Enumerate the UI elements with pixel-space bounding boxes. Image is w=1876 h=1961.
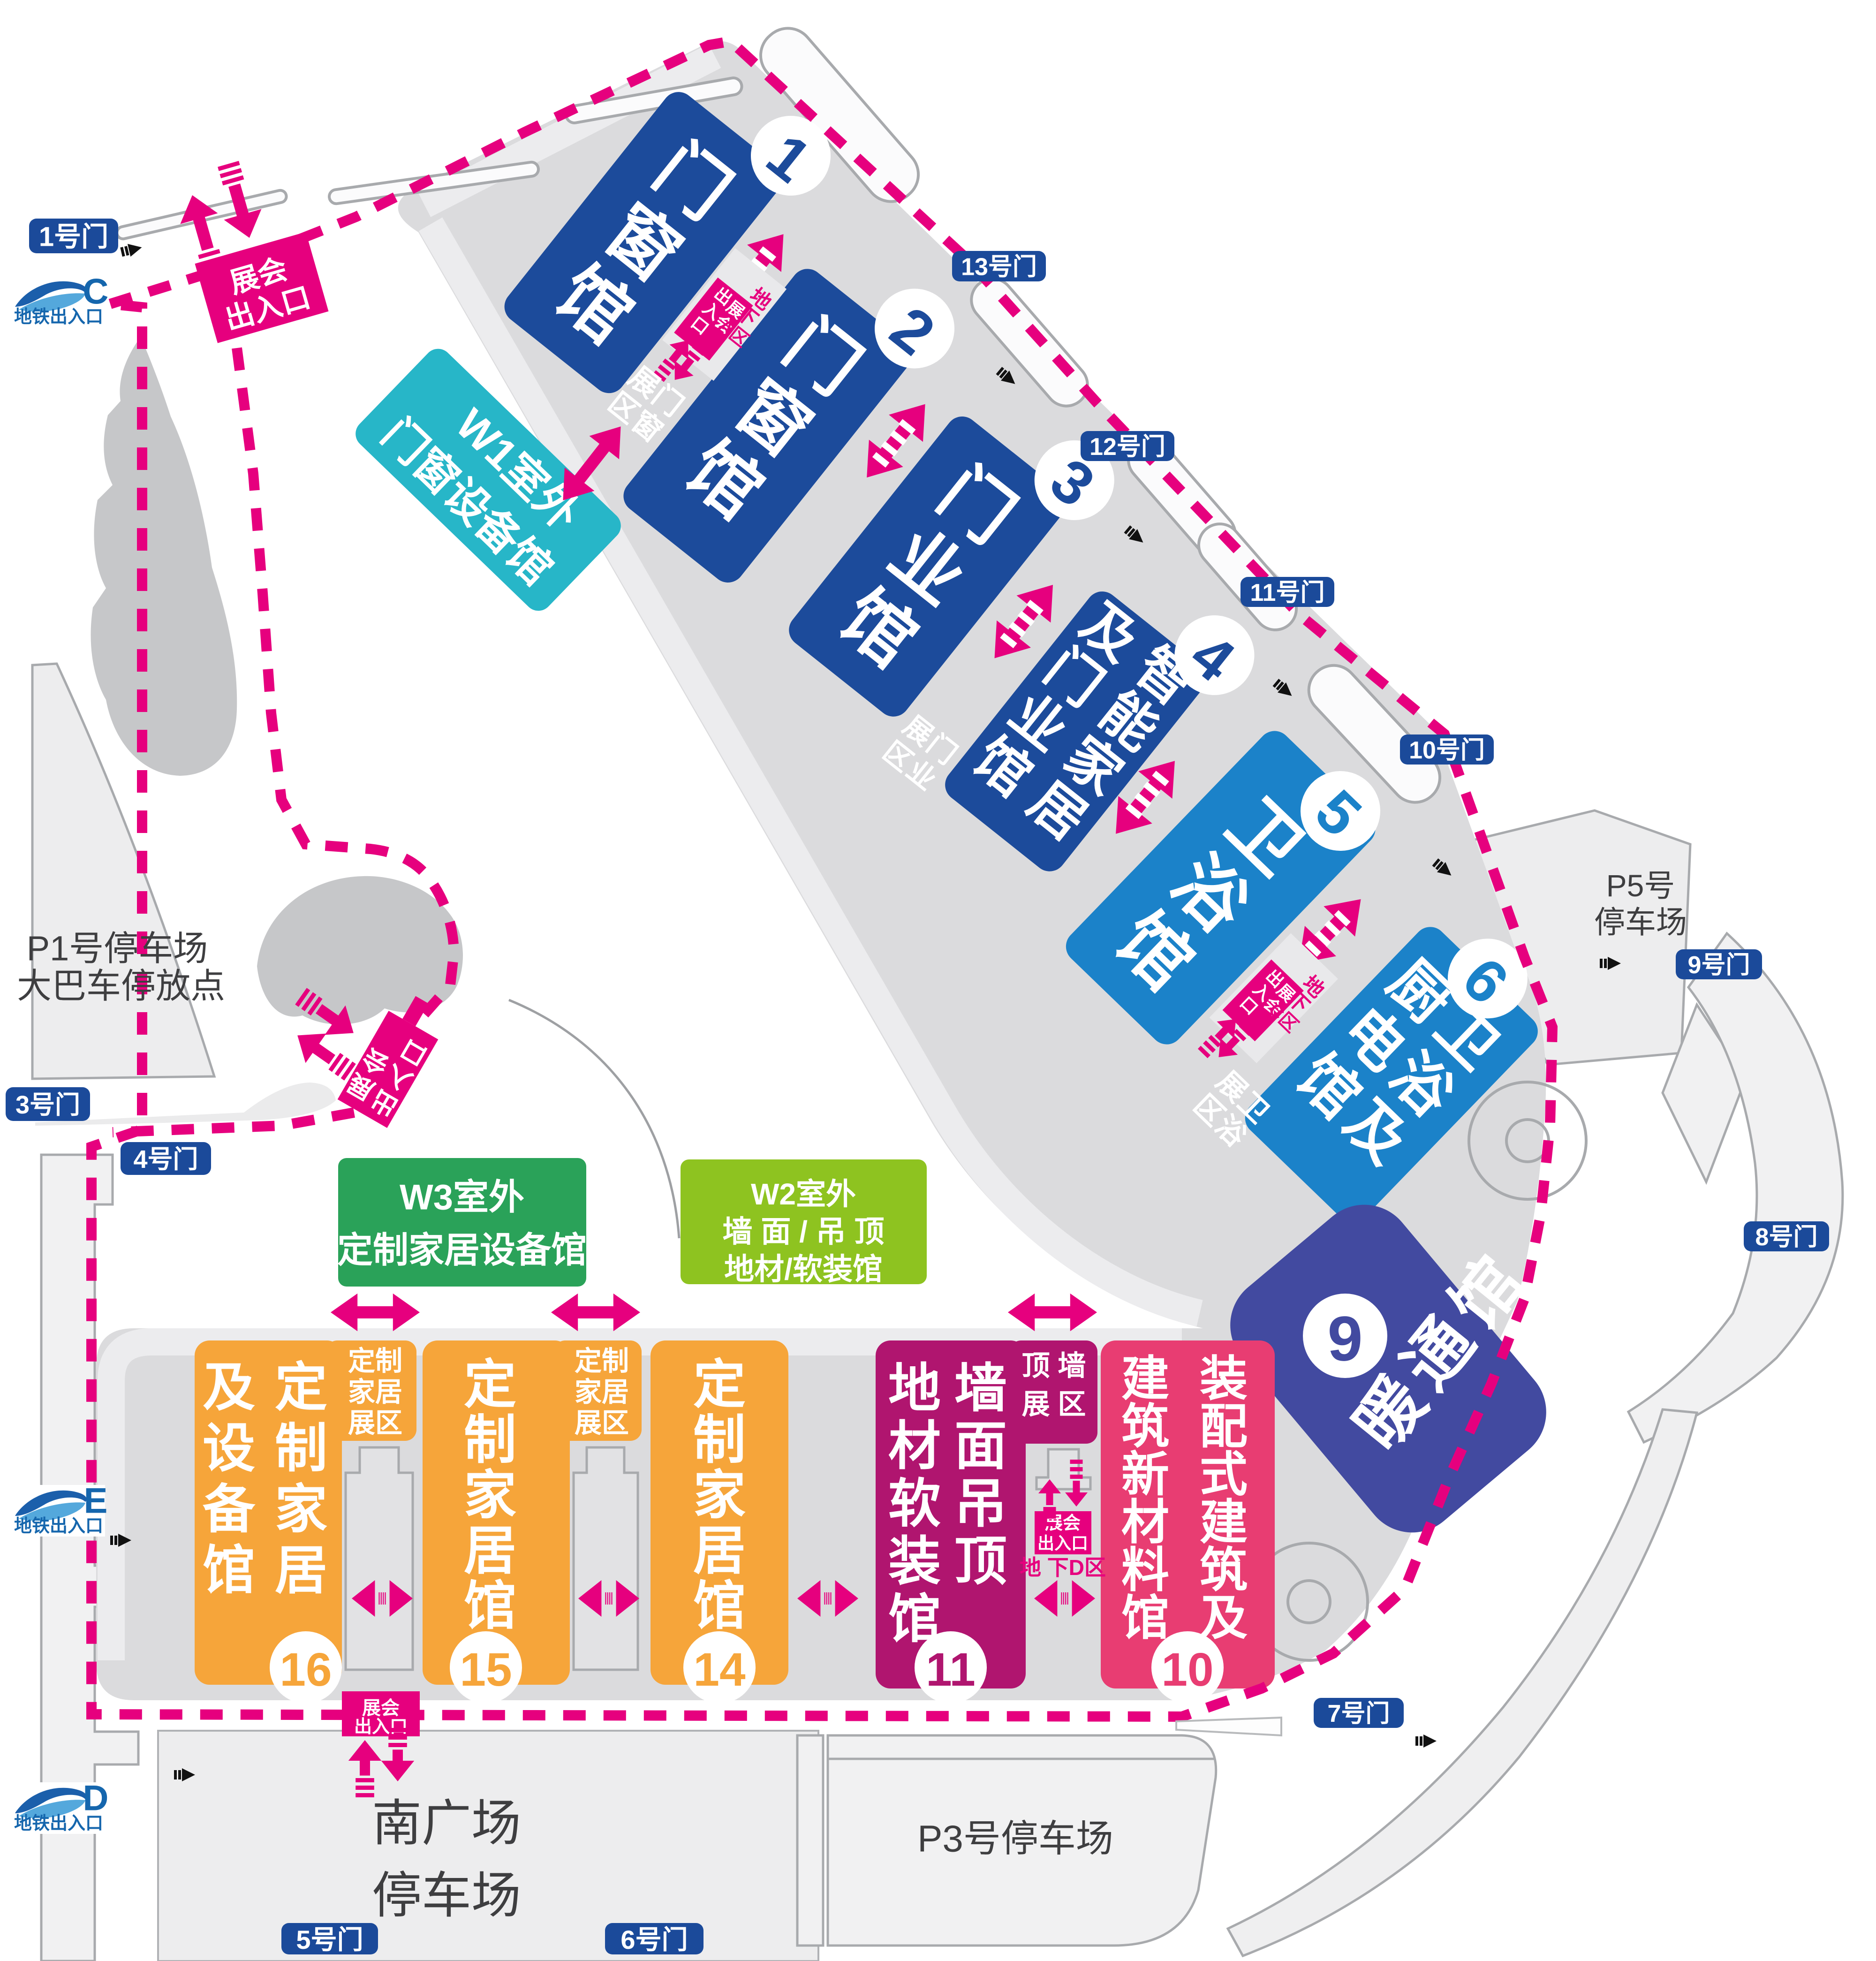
svg-text:4号门: 4号门: [133, 1145, 198, 1174]
svg-text:墙 面 / 吊 顶: 墙 面 / 吊 顶: [723, 1215, 885, 1249]
svg-text:P5号: P5号: [1606, 868, 1675, 903]
svg-text:筑: 筑: [1121, 1400, 1169, 1454]
svg-text:吊: 吊: [954, 1475, 1007, 1533]
svg-text:5号门: 5号门: [296, 1925, 363, 1954]
svg-text:12号门: 12号门: [1089, 433, 1165, 461]
svg-text:出入口: 出入口: [354, 1717, 408, 1737]
svg-text:筑: 筑: [1200, 1544, 1248, 1597]
svg-text:馆: 馆: [203, 1541, 255, 1600]
svg-text:材: 材: [1121, 1496, 1169, 1549]
svg-text:9号门: 9号门: [1688, 952, 1750, 979]
svg-text:停车场: 停车场: [372, 1868, 521, 1923]
svg-text:面: 面: [954, 1417, 1007, 1476]
svg-text:6号门: 6号门: [620, 1925, 688, 1954]
svg-text:地: 地: [888, 1359, 941, 1418]
svg-text:定: 定: [275, 1358, 327, 1417]
svg-text:P1号停车场: P1号停车场: [27, 929, 208, 968]
svg-text:软: 软: [888, 1475, 941, 1533]
svg-text:地铁出入口: 地铁出入口: [14, 1814, 103, 1833]
svg-text:地铁出入口: 地铁出入口: [14, 307, 103, 327]
svg-text:设: 设: [203, 1419, 255, 1478]
svg-text:建: 建: [1121, 1352, 1169, 1406]
svg-text:馆: 馆: [693, 1577, 746, 1635]
svg-text:材: 材: [888, 1417, 941, 1476]
svg-text:E: E: [84, 1481, 108, 1521]
svg-text:南广场: 南广场: [372, 1796, 521, 1851]
svg-text:装: 装: [1200, 1352, 1248, 1406]
svg-text:定: 定: [464, 1355, 516, 1414]
svg-text:制: 制: [275, 1419, 327, 1478]
svg-text:装: 装: [888, 1532, 941, 1591]
svg-text:展区: 展区: [348, 1408, 402, 1439]
svg-text:新: 新: [1121, 1448, 1169, 1501]
svg-text:W2室外: W2室外: [751, 1177, 856, 1211]
svg-text:C: C: [83, 272, 109, 312]
svg-text:展 区: 展 区: [1022, 1389, 1086, 1420]
svg-text:配: 配: [1200, 1400, 1248, 1454]
svg-text:定制家居设备馆: 定制家居设备馆: [337, 1231, 587, 1271]
svg-text:停车场: 停车场: [1594, 905, 1687, 939]
svg-text:15: 15: [460, 1643, 512, 1696]
svg-text:8号门: 8号门: [1755, 1224, 1818, 1251]
svg-text:及: 及: [1200, 1591, 1248, 1645]
svg-text:7号门: 7号门: [1328, 1700, 1390, 1727]
svg-text:10号门: 10号门: [1409, 737, 1485, 764]
svg-text:16: 16: [280, 1643, 332, 1696]
svg-text:11号门: 11号门: [1250, 579, 1325, 606]
svg-text:9: 9: [1327, 1303, 1362, 1374]
svg-text:馆: 馆: [464, 1577, 516, 1635]
svg-text:家居: 家居: [348, 1377, 402, 1408]
svg-text:展区: 展区: [575, 1408, 629, 1439]
svg-text:备: 备: [203, 1480, 256, 1539]
svg-text:地铁出入口: 地铁出入口: [14, 1516, 103, 1536]
svg-text:地 下D区: 地 下D区: [1020, 1555, 1106, 1580]
svg-text:地材/软装馆: 地材/软装馆: [724, 1252, 883, 1286]
svg-text:定制: 定制: [348, 1346, 402, 1377]
svg-text:家: 家: [693, 1466, 746, 1525]
svg-text:家: 家: [464, 1466, 516, 1525]
svg-text:D: D: [83, 1779, 109, 1818]
svg-text:家居: 家居: [575, 1377, 629, 1408]
svg-text:13号门: 13号门: [961, 254, 1037, 281]
svg-text:建: 建: [1200, 1496, 1248, 1549]
svg-text:W3室外: W3室外: [400, 1178, 524, 1218]
svg-text:P3号停车场: P3号停车场: [917, 1818, 1113, 1860]
svg-text:家: 家: [275, 1480, 327, 1539]
svg-text:制: 制: [693, 1411, 746, 1469]
svg-text:出入口: 出入口: [1037, 1534, 1088, 1553]
svg-text:及: 及: [203, 1358, 255, 1417]
svg-text:10: 10: [1161, 1643, 1213, 1696]
svg-text:定: 定: [693, 1355, 746, 1414]
svg-text:3号门: 3号门: [15, 1091, 80, 1119]
svg-text:定制: 定制: [575, 1346, 629, 1377]
svg-text:式: 式: [1200, 1448, 1248, 1501]
svg-text:馆: 馆: [1121, 1591, 1169, 1645]
svg-text:居: 居: [464, 1522, 516, 1580]
svg-text:展会: 展会: [362, 1698, 400, 1719]
svg-text:居: 居: [275, 1541, 327, 1600]
svg-text:顶 墙: 顶 墙: [1022, 1350, 1086, 1382]
svg-text:墙: 墙: [954, 1359, 1007, 1418]
svg-text:料: 料: [1121, 1544, 1169, 1597]
svg-text:制: 制: [464, 1411, 516, 1469]
svg-text:大巴车停放点: 大巴车停放点: [17, 967, 225, 1006]
svg-text:11: 11: [926, 1643, 976, 1696]
svg-text:1号门: 1号门: [39, 222, 108, 252]
svg-text:顶: 顶: [954, 1532, 1007, 1591]
svg-text:14: 14: [693, 1643, 746, 1696]
svg-text:居: 居: [693, 1522, 746, 1580]
